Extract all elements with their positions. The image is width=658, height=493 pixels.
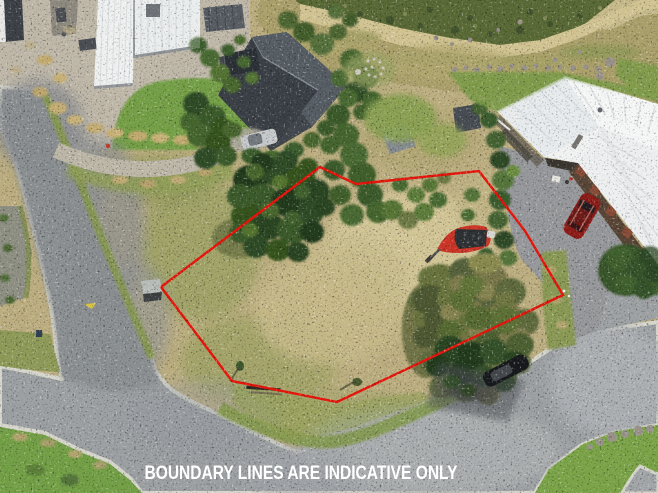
svg-text:BOUNDARY LINES ARE INDICATIVE: BOUNDARY LINES ARE INDICATIVE ONLY — [145, 463, 458, 484]
